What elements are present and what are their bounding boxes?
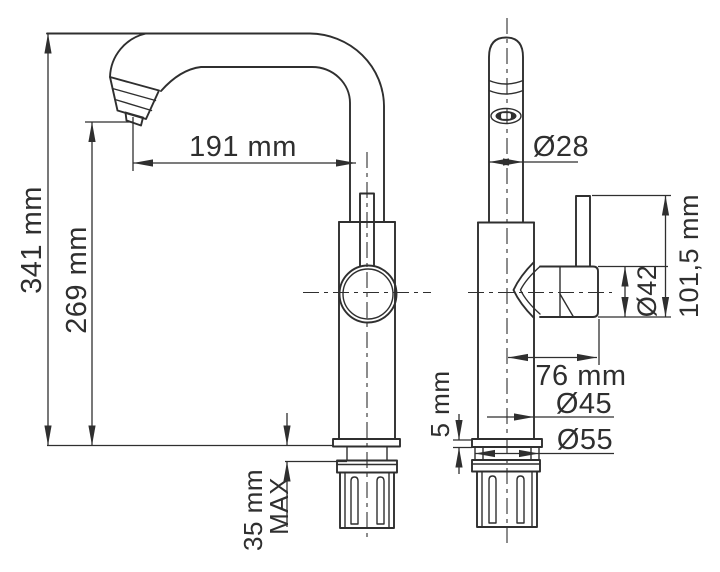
dimension-body-diameter: Ø45: [487, 388, 614, 420]
spout-nozzle: [110, 77, 159, 126]
faucet-side-view: [47, 34, 431, 543]
dimension-deck-thickness: 35 mm MAX: [238, 413, 347, 551]
thread-groove: [377, 477, 384, 524]
dimension-label: Ø45: [556, 388, 612, 420]
dimension-label: Ø55: [557, 424, 613, 456]
dimension-base-height: 5 mm: [425, 371, 472, 475]
handle-joint-inner-circle: [343, 269, 393, 319]
dimension-label: 269 mm: [61, 226, 93, 334]
dimension-spout-height: 269 mm: [61, 122, 133, 446]
dimension-label: 191 mm: [189, 131, 297, 163]
dimension-label: Ø42: [632, 265, 662, 318]
dimension-total-height: 341 mm: [16, 34, 48, 446]
handle-cone-outer: [514, 262, 535, 318]
dimension-label: 5 mm: [425, 371, 455, 438]
handle-silhouette-line: [560, 294, 574, 317]
spout-outer-profile: [47, 34, 384, 223]
base-band-front: [472, 460, 540, 472]
aerator-ring-lines: [489, 81, 523, 95]
dimension-label-suffix: MAX: [264, 477, 294, 535]
nozzle-ring-line: [113, 89, 156, 101]
handle-joint-outer-circle: [340, 266, 397, 323]
handle-rod-front: [576, 196, 590, 266]
dimension-label: 341 mm: [16, 186, 48, 294]
nozzle-body: [110, 77, 159, 119]
thread-groove: [489, 476, 496, 523]
dimension-label: Ø28: [533, 131, 589, 163]
spout-left-curve: [110, 34, 146, 78]
dimension-handle-projection: 76 mm: [508, 319, 627, 392]
faucet-dimension-drawing: 341 mm 269 mm 191 mm 35 mm MAX Ø28: [0, 0, 720, 572]
technical-drawing: 341 mm 269 mm 191 mm 35 mm MAX Ø28: [0, 0, 720, 572]
spout-column: [489, 38, 523, 223]
dimension-label: 101,5 mm: [674, 194, 704, 318]
dimension-spout-pipe-diameter: Ø28: [489, 131, 589, 163]
nozzle-ring-line: [115, 100, 152, 111]
dimension-base-diameter: Ø55: [475, 424, 614, 456]
thread-groove: [351, 477, 358, 524]
dimension-spout-reach: 191 mm: [133, 117, 356, 171]
body-sides-front: [478, 223, 534, 440]
dimension-handle-diameter: Ø42: [598, 265, 668, 318]
aerator-outlet: [501, 113, 512, 120]
thread-groove: [517, 476, 524, 523]
faucet-front-view: [468, 18, 612, 543]
